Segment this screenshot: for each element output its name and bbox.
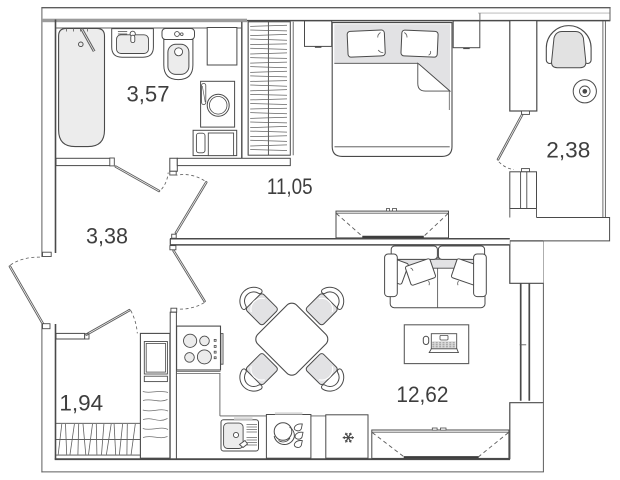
svg-text:11,05: 11,05 [267,174,313,199]
svg-text:1,94: 1,94 [59,390,103,415]
svg-text:2,38: 2,38 [546,138,590,163]
svg-text:12,62: 12,62 [396,382,448,407]
svg-text:3,38: 3,38 [86,223,128,248]
svg-text:3,57: 3,57 [127,82,170,107]
